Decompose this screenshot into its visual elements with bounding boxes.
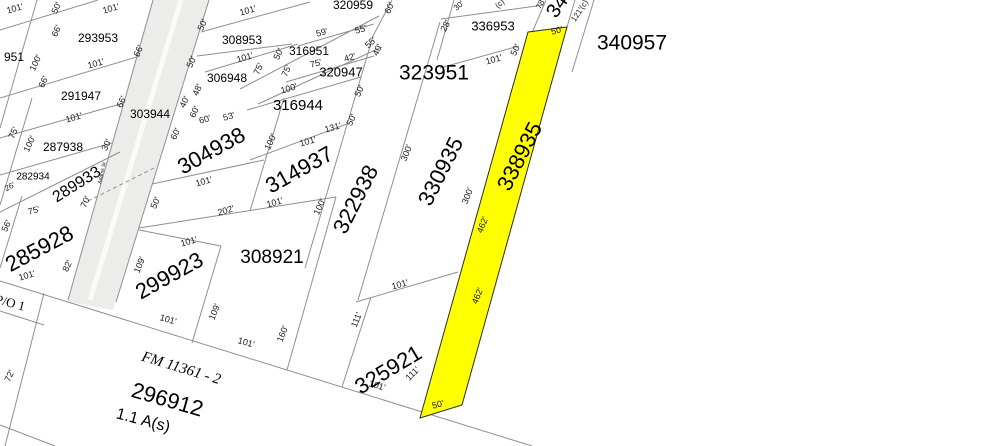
parcel-label-308921[interactable]: 308921 <box>240 247 303 268</box>
parcel-label-316944[interactable]: 316944 <box>273 97 323 114</box>
parcel-label-336953[interactable]: 336953 <box>471 18 514 33</box>
parcel-label-291947[interactable]: 291947 <box>61 89 101 103</box>
parcel-label-320947[interactable]: 320947 <box>319 64 362 79</box>
parcel-label-323951[interactable]: 323951 <box>399 62 469 85</box>
parcel-label-316951[interactable]: 316951 <box>289 44 329 58</box>
parcel-label-287938[interactable]: 287938 <box>43 140 83 154</box>
parcel-label-320959[interactable]: 320959 <box>333 0 373 12</box>
parcel-label-951[interactable]: 951 <box>4 50 24 64</box>
parcel-label-340957[interactable]: 340957 <box>597 32 667 55</box>
parcel-label-293953[interactable]: 293953 <box>78 31 118 45</box>
parcel-label-308953[interactable]: 308953 <box>222 33 262 47</box>
parcel-label-282934[interactable]: 282934 <box>16 172 50 183</box>
map-viewport: Adams St101'50'101'66'66'100'101'66'66'1… <box>0 0 1000 446</box>
plat-map: Adams St101'50'101'66'66'100'101'66'66'1… <box>0 0 1000 446</box>
parcel-label-306948[interactable]: 306948 <box>207 71 247 85</box>
parcel-label-303944[interactable]: 303944 <box>130 107 170 121</box>
